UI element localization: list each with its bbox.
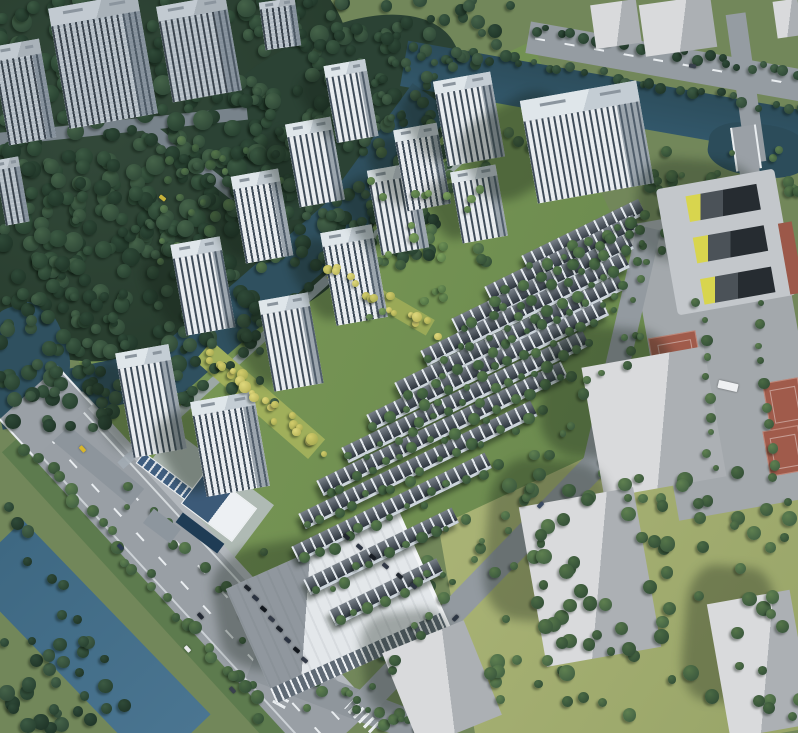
tree (404, 503, 410, 509)
tree (630, 297, 636, 303)
tree (108, 526, 117, 535)
tree (253, 87, 262, 96)
roof-equipment (267, 302, 278, 307)
courtyard (685, 184, 760, 222)
tree (326, 40, 340, 54)
tree (147, 20, 159, 32)
tree (448, 62, 458, 72)
tree (600, 274, 607, 281)
tree (99, 518, 108, 527)
tree (755, 105, 762, 112)
roof-equipment (25, 44, 34, 48)
tree (614, 224, 621, 231)
tree (57, 656, 69, 668)
tree (183, 338, 197, 352)
tree (95, 241, 112, 258)
tree (4, 502, 14, 512)
tree (411, 622, 418, 629)
tree (536, 549, 552, 565)
roof-equipment (205, 242, 214, 247)
tree (730, 92, 737, 99)
tree (531, 348, 541, 358)
tree (581, 69, 588, 76)
tree (581, 493, 594, 506)
tree (431, 59, 438, 66)
tree (303, 0, 313, 8)
tree (7, 392, 22, 407)
tree (23, 557, 32, 566)
tree (2, 296, 11, 305)
tree (537, 319, 548, 330)
tree (578, 268, 584, 274)
tree (84, 713, 97, 726)
tree (552, 65, 561, 74)
tree (49, 387, 59, 397)
roof-equipment (293, 298, 302, 303)
tree (733, 64, 740, 71)
tree (471, 556, 478, 563)
tree (622, 642, 635, 655)
tree (762, 403, 772, 413)
tree (352, 562, 360, 570)
roof-equipment (124, 354, 136, 359)
tree (731, 627, 744, 640)
tree (768, 473, 777, 482)
tree (618, 478, 631, 491)
tree (124, 504, 130, 510)
tree (408, 222, 415, 229)
tree (80, 691, 89, 700)
tree (466, 317, 477, 328)
tree (237, 0, 255, 17)
tree (316, 686, 328, 698)
tree (643, 259, 650, 266)
tree (369, 467, 376, 474)
tree (417, 388, 428, 399)
tree (147, 221, 155, 229)
tree (661, 146, 672, 157)
tree (452, 364, 463, 375)
tree (82, 338, 92, 348)
tree (0, 685, 15, 700)
tree (534, 680, 542, 688)
tree (529, 450, 539, 460)
tree (205, 160, 215, 170)
tree (564, 278, 573, 287)
tree (473, 243, 483, 253)
tree (187, 386, 197, 396)
roof-equipment (443, 81, 456, 86)
tower-facade (159, 9, 242, 102)
roof-equipment (179, 246, 190, 251)
courtyard-building (656, 169, 796, 316)
tree (476, 254, 487, 265)
tree (518, 280, 529, 291)
tree (485, 57, 494, 66)
tree (83, 246, 92, 255)
tree (668, 675, 677, 684)
tree (239, 94, 252, 107)
tree (735, 563, 746, 574)
tree (605, 233, 616, 244)
tree (472, 53, 483, 64)
tree (106, 128, 119, 141)
tree (222, 168, 228, 174)
roof-equipment (472, 77, 483, 82)
tree (615, 622, 628, 635)
tree (563, 599, 577, 613)
tree (776, 620, 789, 633)
tree (414, 417, 424, 427)
tree (32, 253, 48, 269)
tree (107, 159, 119, 171)
tree (439, 373, 445, 379)
tree (449, 579, 456, 586)
tree (118, 699, 131, 712)
tree (344, 452, 351, 459)
tree (145, 133, 158, 146)
tree (102, 204, 119, 221)
tree (424, 355, 432, 363)
tree (634, 474, 643, 483)
tree (395, 437, 403, 445)
courtyard (693, 225, 768, 263)
roof-equipment (458, 172, 468, 177)
roof-equipment (204, 1, 217, 6)
tree (147, 569, 156, 578)
tree (478, 29, 486, 37)
tree (542, 25, 548, 31)
tree (253, 713, 264, 724)
tree (304, 521, 311, 528)
tree (315, 515, 324, 524)
tree (239, 680, 252, 693)
tree (773, 101, 779, 107)
tree (531, 596, 544, 609)
tree (459, 399, 466, 406)
roof-equipment (329, 234, 341, 239)
tree (573, 247, 585, 259)
tree (75, 668, 84, 677)
tree (26, 187, 38, 199)
tree (565, 62, 575, 72)
tree (760, 503, 773, 516)
tree (292, 428, 300, 436)
context-tower (259, 0, 301, 50)
tree (621, 245, 631, 255)
tree (249, 393, 259, 403)
tree (108, 312, 118, 322)
tree (408, 427, 418, 437)
tree (302, 212, 310, 220)
tree (50, 366, 63, 379)
context-block (773, 0, 800, 39)
tree (83, 220, 98, 235)
tree (205, 652, 217, 664)
tree (119, 289, 128, 298)
tree (380, 596, 391, 607)
tree (560, 430, 567, 437)
tree (623, 361, 631, 369)
roof-equipment (331, 67, 341, 72)
tree (409, 233, 419, 243)
tree (578, 388, 590, 400)
tree (439, 242, 448, 251)
tree (427, 15, 435, 23)
tree (423, 570, 431, 578)
tree (271, 418, 277, 424)
roof-equipment (239, 177, 250, 182)
tree (559, 665, 574, 680)
tree (760, 61, 767, 68)
tree (541, 305, 553, 317)
tree (352, 280, 359, 287)
tree (566, 309, 573, 316)
tree (200, 562, 211, 573)
tree (441, 437, 448, 444)
tree (438, 285, 446, 293)
tree (489, 311, 499, 321)
tree (483, 417, 490, 424)
tree (633, 257, 642, 266)
tree (193, 110, 213, 130)
tree (542, 655, 553, 666)
tree (574, 584, 588, 598)
roof-equipment (0, 48, 11, 53)
tree (701, 335, 712, 346)
tower-facade (193, 405, 270, 496)
tree (156, 145, 166, 155)
tree (443, 192, 450, 199)
court-lines (769, 386, 800, 424)
tree (405, 66, 411, 72)
tree (370, 294, 378, 302)
tree (379, 75, 388, 84)
tree (486, 335, 493, 342)
tree (510, 562, 518, 570)
tree (386, 292, 394, 300)
massing-block (581, 346, 726, 498)
tree (753, 695, 765, 707)
tree (265, 93, 281, 109)
tree (250, 123, 263, 136)
tree (379, 308, 385, 314)
tree (46, 279, 60, 293)
tree (705, 50, 716, 61)
tree (381, 32, 394, 45)
tree (657, 500, 669, 512)
tree (114, 297, 129, 312)
tower-facade (51, 11, 158, 129)
tree (599, 598, 612, 611)
tree (683, 665, 699, 681)
tree (488, 24, 502, 38)
tree (43, 419, 55, 431)
context-block (639, 0, 718, 57)
tree (553, 266, 562, 275)
tree (339, 577, 351, 589)
roof-equipment (293, 125, 303, 130)
tree (706, 413, 716, 423)
tree (382, 94, 393, 105)
tree (224, 120, 240, 136)
tree (769, 154, 777, 162)
tree (461, 514, 472, 525)
tree (598, 370, 605, 377)
tree (637, 275, 645, 283)
tree (524, 389, 536, 401)
tree (717, 88, 726, 97)
tree (442, 480, 449, 487)
tree (303, 704, 311, 712)
tree (522, 493, 531, 502)
tree (218, 362, 227, 371)
tree (742, 592, 756, 606)
tree (713, 465, 719, 471)
tree (451, 47, 462, 58)
tree (780, 533, 789, 542)
tree (294, 224, 306, 236)
tree (478, 441, 484, 447)
tree (702, 373, 709, 380)
tree (467, 195, 475, 203)
tree (385, 251, 392, 258)
tree (439, 14, 450, 25)
tree (660, 536, 675, 551)
tree (500, 50, 512, 62)
tree (466, 438, 478, 450)
tree (5, 414, 21, 430)
tree (636, 532, 648, 544)
roof-equipment (109, 1, 125, 7)
tree (765, 542, 775, 552)
roof-equipment (63, 8, 83, 14)
tree (335, 485, 344, 494)
tree (75, 177, 86, 188)
roof-equipment (539, 99, 565, 106)
tree (177, 136, 185, 144)
tree (502, 356, 512, 366)
tree (654, 629, 669, 644)
tree (20, 718, 36, 734)
tree (126, 164, 142, 180)
tree (51, 677, 61, 687)
tree (53, 638, 66, 651)
tree (289, 412, 296, 419)
tree (365, 561, 373, 569)
tree (434, 333, 441, 340)
tree (25, 391, 35, 401)
tree (644, 78, 654, 88)
tree (484, 667, 497, 680)
tree (243, 147, 249, 153)
roof-equipment (600, 90, 621, 97)
tree (179, 154, 188, 163)
tree (33, 453, 43, 463)
tree (705, 689, 719, 703)
tree (600, 67, 608, 75)
tree (768, 443, 778, 453)
tree (434, 399, 442, 407)
tree (440, 572, 446, 578)
tree (492, 405, 501, 414)
tree (493, 459, 504, 470)
tree (758, 666, 767, 675)
tree (420, 297, 429, 306)
tree (406, 442, 417, 453)
tree (56, 329, 70, 343)
tree (508, 335, 516, 343)
tree (131, 225, 140, 234)
tree (386, 514, 393, 521)
tree (438, 592, 450, 604)
tree (416, 631, 426, 641)
tree (589, 258, 600, 269)
roof-equipment (168, 6, 184, 12)
tree (663, 602, 676, 615)
tree (583, 638, 596, 651)
tree (764, 419, 774, 429)
tree (504, 378, 513, 387)
tree (608, 266, 620, 278)
tree (562, 484, 576, 498)
tree (47, 574, 57, 584)
tree (306, 433, 318, 445)
tree (352, 471, 362, 481)
tree (755, 343, 761, 349)
tree (524, 328, 530, 334)
tree (326, 10, 337, 21)
tree (491, 39, 502, 50)
roof-equipment (283, 1, 290, 5)
tree (379, 193, 387, 201)
tree (206, 349, 214, 357)
tree (336, 615, 346, 625)
tree (655, 83, 665, 93)
aerial-rendering (0, 0, 800, 735)
tree (398, 716, 404, 722)
tree (181, 168, 188, 175)
tree (556, 637, 568, 649)
tree (347, 273, 354, 280)
tower-facade (260, 5, 301, 50)
tree (584, 237, 593, 246)
tree (22, 677, 36, 691)
tree (384, 411, 396, 423)
tree (533, 468, 546, 481)
tree (770, 460, 781, 471)
tree (381, 0, 393, 12)
tree (648, 535, 661, 548)
tree (468, 413, 480, 425)
tree (582, 299, 589, 306)
tree (496, 695, 505, 704)
tree (538, 619, 553, 634)
tree (22, 525, 34, 537)
tree (100, 292, 109, 301)
tree (782, 511, 797, 526)
tree (126, 564, 137, 575)
tree (423, 249, 435, 261)
tree (473, 360, 483, 370)
tree (676, 479, 689, 492)
tree (409, 42, 418, 51)
tree (694, 591, 704, 601)
tree (755, 319, 765, 329)
tree (79, 274, 90, 285)
tree (38, 266, 51, 279)
tree (87, 505, 99, 517)
